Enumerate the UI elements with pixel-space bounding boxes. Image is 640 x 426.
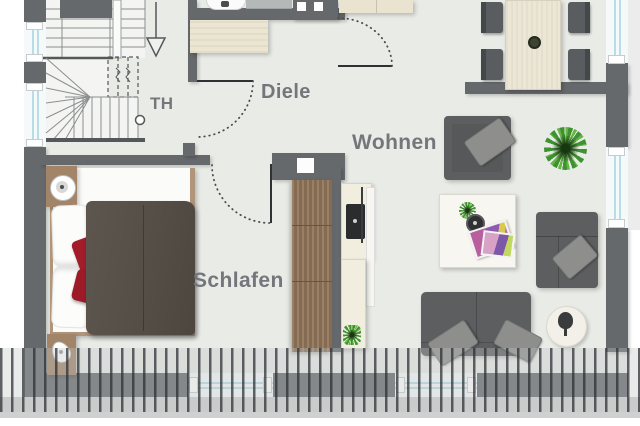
wardrobe-cabinet-icon [292,180,332,352]
coffee-table-icon [439,194,516,268]
panel-icon [366,187,375,307]
window-icon [24,83,46,147]
plant-icon [544,127,587,170]
washbasin-icon [246,0,292,9]
wall-top-stub [60,0,112,18]
bed-lamp-icon [50,175,76,201]
room-label-diele: Diele [261,81,311,104]
wall-kitchen [331,167,341,352]
wall-right-pillar [606,63,628,147]
dining-chair-icon [481,2,503,33]
wall-left-top [24,0,46,22]
duvet-icon [86,201,195,335]
handle-icon [361,187,363,243]
sideboard-icon [339,0,413,13]
dining-chair-icon [568,2,590,33]
exterior-right-strip [628,0,640,230]
room-label-schlafen: Schlafen [193,269,284,293]
magazines-icon [481,230,516,259]
wall-right-lower [606,228,628,352]
dining-chair-icon [481,49,503,80]
balcony-railing-icon [0,348,640,412]
shaft-opening [297,158,314,173]
window-icon [606,0,628,63]
shaft-opening [297,2,306,11]
wall-th-bottom-stub [183,143,195,156]
wall-left-long [24,147,46,373]
dining-table-icon [505,0,561,90]
sideboard-icon [190,20,268,53]
window-icon [46,0,60,17]
wall-left-mid [24,62,46,83]
shaft-opening [314,2,323,11]
window-icon [606,147,628,228]
wall-th-bottom [40,155,210,165]
dining-chair-icon [568,49,590,80]
room-label-th: TH [150,94,173,114]
plant-icon [343,325,361,345]
toilet-icon [206,0,246,10]
floor-plan: TH Diele Wohnen Schlafen [0,0,640,426]
room-label-wohnen: Wohnen [352,131,437,155]
rug-icon [546,306,587,347]
